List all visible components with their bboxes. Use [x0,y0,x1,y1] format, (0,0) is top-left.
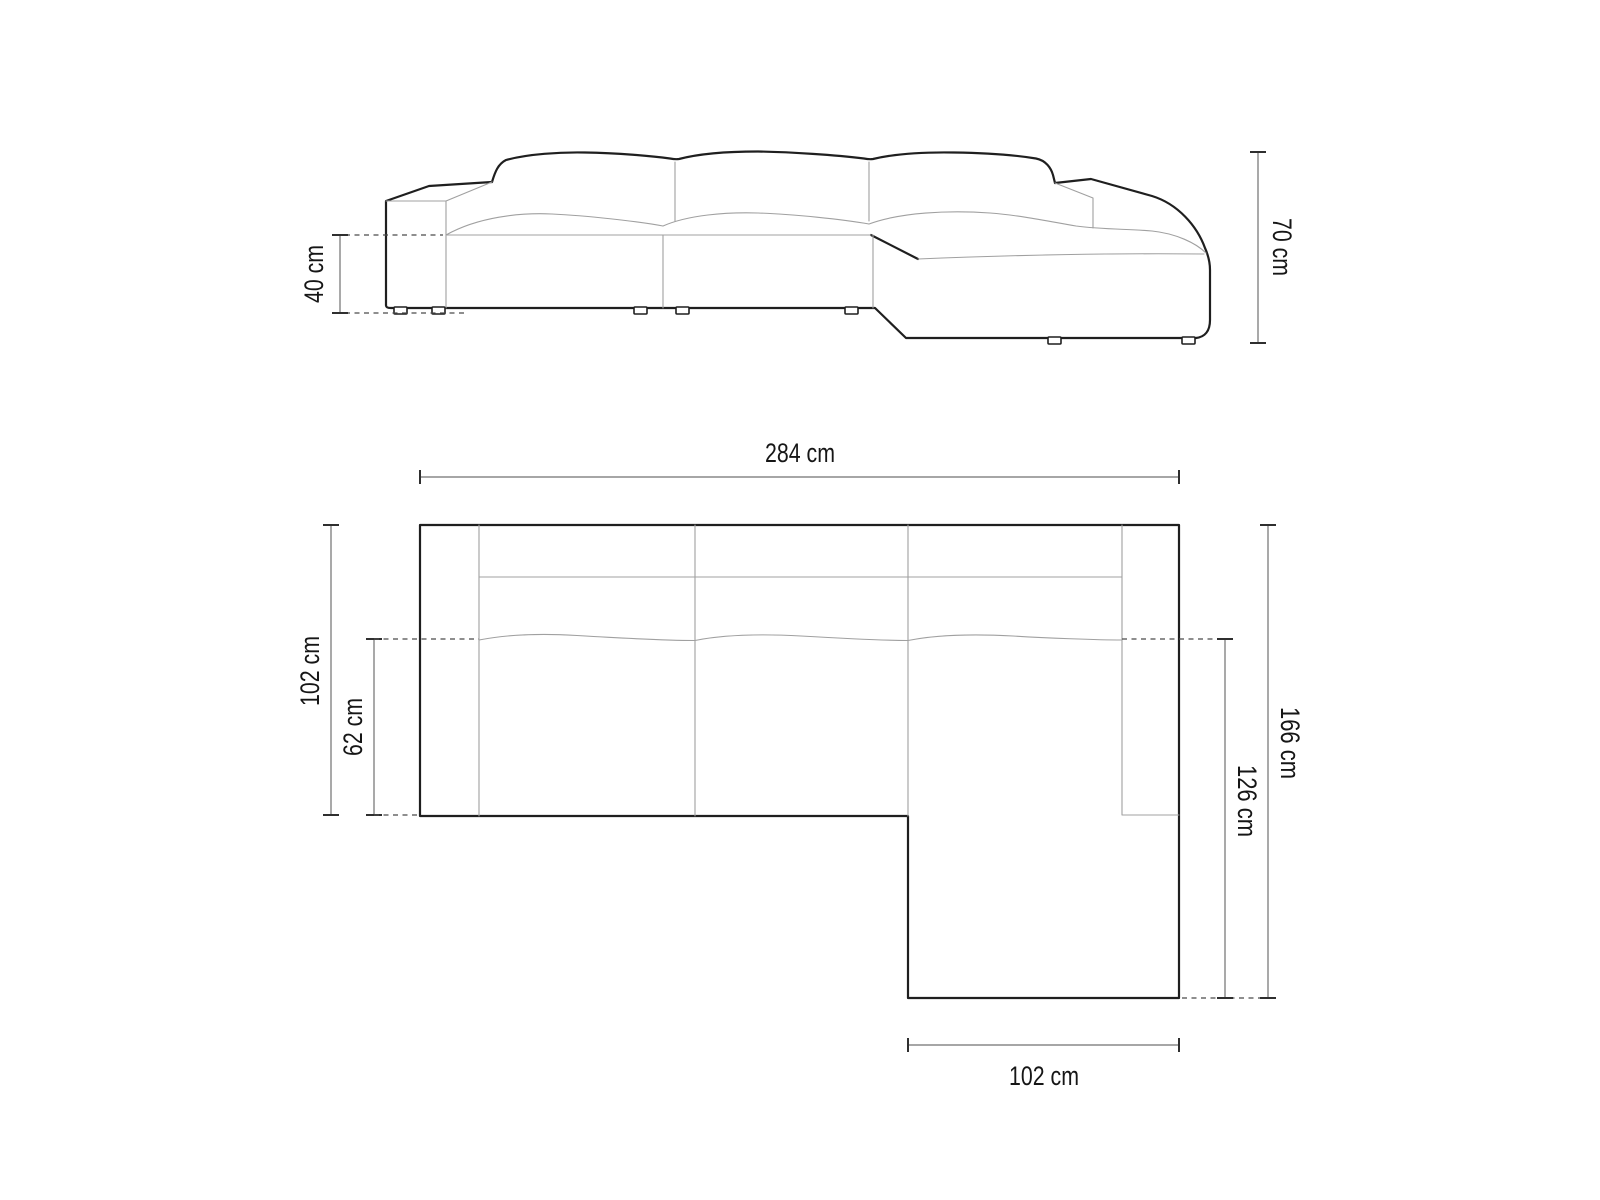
sofa-foot [845,307,858,314]
dim-label-overall-width: 284 cm [765,438,835,468]
sofa-front-bottom-path [386,305,1196,338]
seat-cushion-curves [446,212,1206,253]
plan-cushion-front-wavy-line [479,634,1122,640]
sofa-dimensions-diagram: 40 cm 70 cm 284 cm [0,0,1600,1200]
dim-label-overall-height: 70 cm [1267,218,1297,276]
dim-chaise-overall-depth: 166 cm [1260,525,1305,998]
dim-label-chaise-width: 102 cm [1009,1061,1079,1091]
sofa-plan-outline-path [420,525,1179,998]
dim-seat-height: 40 cm [299,235,467,313]
sofa-front-right-armrest-path [1055,179,1210,338]
dim-overall-width: 284 cm [420,438,1179,484]
dim-seat-depth: 62 cm [338,639,382,815]
sofa-foot [1182,337,1195,344]
dim-label-seat-height: 40 cm [299,245,329,303]
back-cushion-split-lines [675,162,869,221]
technical-drawing: 40 cm 70 cm 284 cm [0,0,1600,1200]
sofa-front-chaise-slant-path [871,235,918,259]
dim-label-seat-depth: 62 cm [338,698,368,756]
dim-overall-depth: 102 cm [295,525,339,815]
dim-chaise-depth: 126 cm [1217,639,1262,998]
sofa-front-back-cushions-path [492,152,1055,184]
front-elevation-view: 40 cm 70 cm [299,152,1297,345]
armrest-top-face-lines [386,182,492,308]
sofa-foot [634,307,647,314]
plan-dashed-extension-lines [374,639,1266,998]
dim-label-chaise-depth: 126 cm [1232,765,1262,837]
sofa-plan-line-art [420,525,1179,998]
sofa-front-line-art [386,152,1210,345]
dim-label-chaise-overall-depth: 166 cm [1275,707,1305,779]
chaise-front-top-edge [918,254,1204,259]
top-plan-view: 284 cm 102 cm 62 cm 166 cm [295,438,1305,1091]
plan-right-armrest-divider [1122,525,1179,815]
dim-chaise-width: 102 cm [908,1038,1179,1091]
sofa-foot [676,307,689,314]
sofa-foot [1048,337,1061,344]
dim-label-overall-depth: 102 cm [295,636,325,706]
right-armrest-face-lines [1055,183,1093,228]
dim-overall-height: 70 cm [1250,152,1297,343]
